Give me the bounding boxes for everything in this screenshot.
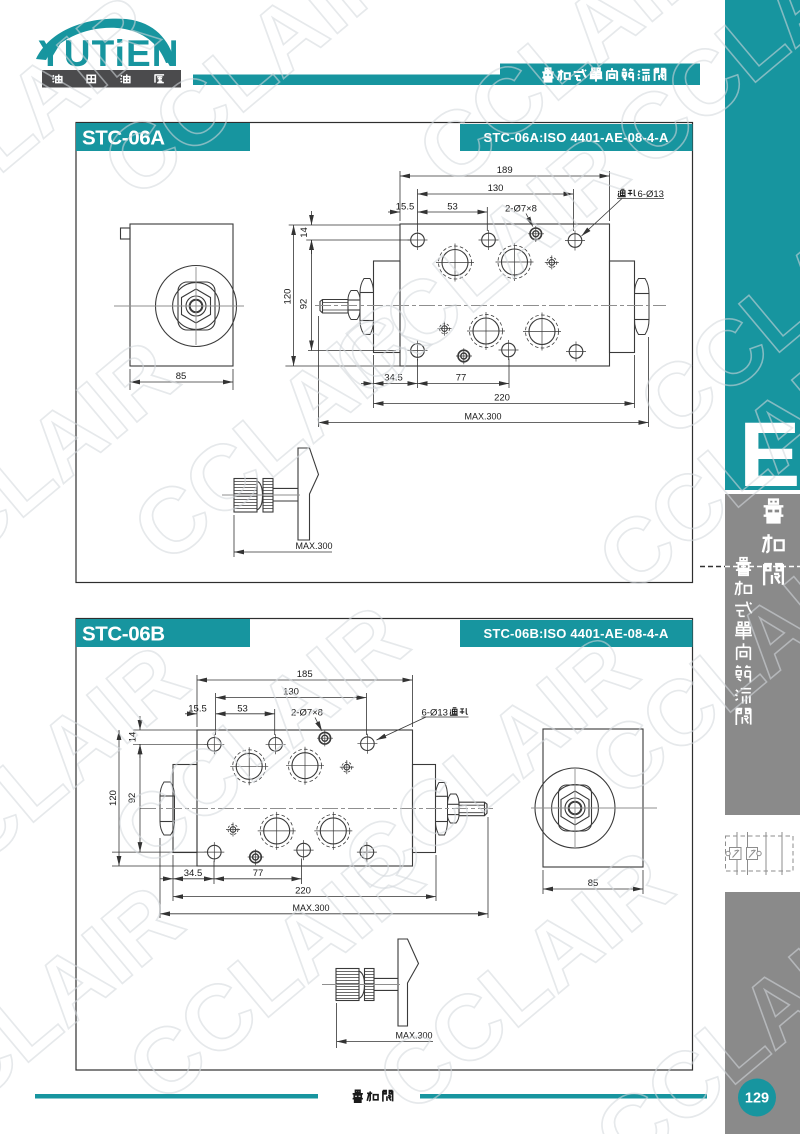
svg-text:77: 77 xyxy=(456,373,467,384)
svg-text:220: 220 xyxy=(494,393,510,404)
svg-text:E: E xyxy=(739,404,800,506)
svg-text:185: 185 xyxy=(297,669,313,680)
svg-text:14: 14 xyxy=(128,732,139,743)
svg-text:15.5: 15.5 xyxy=(188,703,207,714)
svg-text:STC-06A: STC-06A xyxy=(82,127,165,150)
svg-text:220: 220 xyxy=(295,886,311,897)
svg-text:129: 129 xyxy=(745,1091,769,1107)
svg-text:15.5: 15.5 xyxy=(396,202,415,213)
svg-text:120: 120 xyxy=(108,790,119,806)
svg-text:130: 130 xyxy=(488,183,504,194)
svg-text:92: 92 xyxy=(127,793,138,804)
svg-text:34.5: 34.5 xyxy=(184,868,203,879)
svg-text:92: 92 xyxy=(299,299,310,310)
svg-text:14: 14 xyxy=(299,227,310,238)
svg-text:MAX.300: MAX.300 xyxy=(395,1031,432,1041)
svg-text:2-Ø7×8: 2-Ø7×8 xyxy=(291,708,323,719)
svg-text:120: 120 xyxy=(283,289,294,305)
svg-text:85: 85 xyxy=(176,371,187,382)
svg-text:YUTiEN: YUTiEN xyxy=(38,33,177,74)
svg-text:STC-06A:ISO 4401-AE-08-4-A: STC-06A:ISO 4401-AE-08-4-A xyxy=(483,130,668,145)
svg-text:MAX.300: MAX.300 xyxy=(292,903,329,913)
svg-text:MAX.300: MAX.300 xyxy=(295,541,332,551)
svg-text:34.5: 34.5 xyxy=(384,373,403,384)
svg-text:189: 189 xyxy=(497,165,513,176)
svg-text:130: 130 xyxy=(283,687,299,698)
svg-text:STC-06B:ISO 4401-AE-08-4-A: STC-06B:ISO 4401-AE-08-4-A xyxy=(483,626,668,641)
svg-text:85: 85 xyxy=(588,878,599,889)
svg-text:77: 77 xyxy=(253,868,264,879)
svg-text:2-Ø7×8: 2-Ø7×8 xyxy=(505,204,537,215)
svg-text:STC-06B: STC-06B xyxy=(82,623,165,646)
svg-text:53: 53 xyxy=(447,202,458,213)
svg-text:53: 53 xyxy=(237,703,248,714)
svg-text:MAX.300: MAX.300 xyxy=(464,412,501,422)
